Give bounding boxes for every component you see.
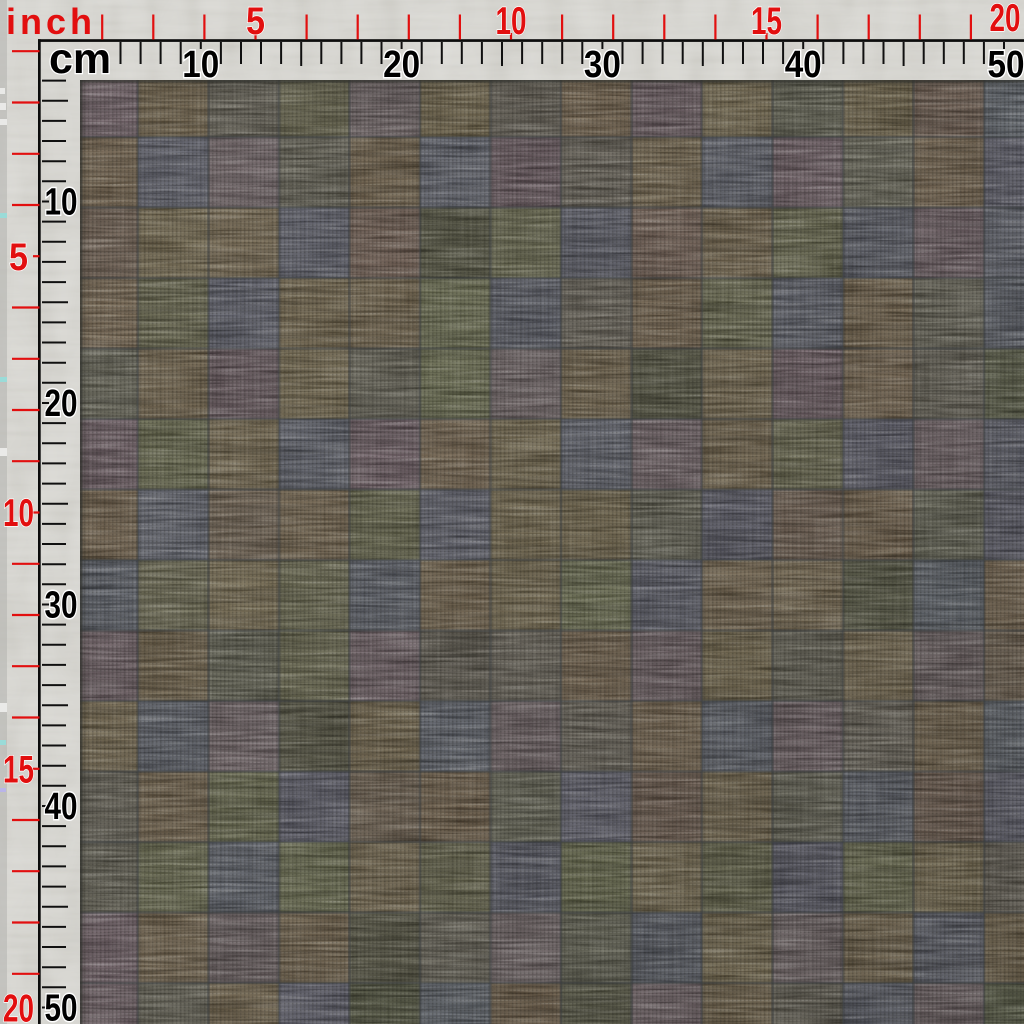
svg-text:5: 5 <box>9 236 28 279</box>
svg-text:50: 50 <box>45 988 78 1024</box>
svg-text:20: 20 <box>383 44 420 86</box>
svg-text:10: 10 <box>3 492 34 535</box>
svg-text:10: 10 <box>45 182 78 224</box>
svg-text:50: 50 <box>988 44 1024 86</box>
svg-text:20: 20 <box>3 988 34 1024</box>
svg-text:15: 15 <box>3 748 34 791</box>
svg-text:20: 20 <box>990 0 1021 40</box>
svg-text:30: 30 <box>45 585 78 627</box>
svg-text:cm: cm <box>49 35 111 83</box>
svg-text:40: 40 <box>785 44 822 86</box>
svg-text:30: 30 <box>584 44 621 86</box>
svg-text:10: 10 <box>496 0 527 43</box>
svg-text:20: 20 <box>45 383 78 425</box>
svg-text:40: 40 <box>45 786 78 828</box>
svg-text:10: 10 <box>182 44 219 86</box>
svg-text:5: 5 <box>246 0 265 43</box>
svg-text:15: 15 <box>751 0 782 43</box>
